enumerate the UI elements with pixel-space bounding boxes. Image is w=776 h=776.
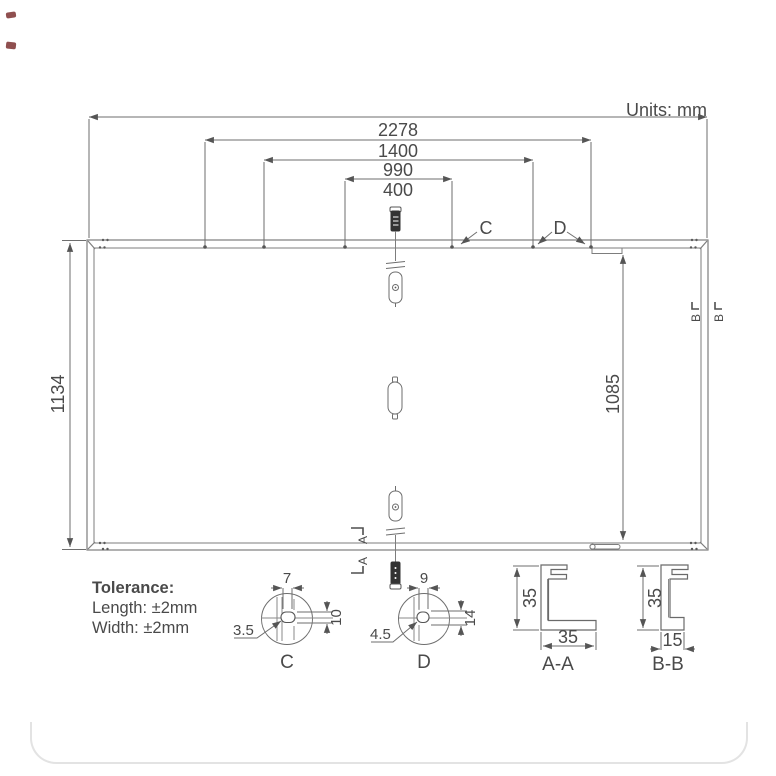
center-bottom-connector (386, 486, 405, 589)
detail-c: 7 10 3.5 C (233, 570, 345, 673)
detail-c-radius-label: 3.5 (233, 622, 254, 639)
section-marker-a: A (356, 557, 370, 565)
technical-drawing-canvas: Units: mm (0, 0, 776, 776)
section-bb-width-label: 15 (662, 630, 682, 650)
tolerance-note: Tolerance: Length: ±2mm Width: ±2mm (92, 579, 197, 637)
detail-d-radius-label: 4.5 (370, 626, 391, 643)
section-aa-height-label: 35 (520, 588, 540, 608)
dimension-label-1134: 1134 (48, 375, 68, 414)
dimension-label-1400: 1400 (378, 141, 418, 161)
tolerance-title: Tolerance: (92, 579, 174, 597)
section-b-cut-marks (692, 302, 722, 309)
detail-c-height-label: 10 (328, 609, 345, 626)
junction-box-body (388, 382, 402, 414)
frame-top-notch (592, 248, 622, 254)
corner-chamfer (700, 542, 707, 549)
center-top-connector (386, 207, 405, 307)
cable-break-mark (386, 267, 405, 269)
cable-break-mark (386, 533, 405, 535)
detail-d-title: D (417, 652, 431, 673)
tolerance-length: Length: ±2mm (92, 599, 197, 617)
dimension-label-990: 990 (383, 160, 413, 180)
mounting-slot-d (417, 612, 429, 623)
cable-break-mark (386, 528, 405, 530)
callout-d-label: D (554, 218, 567, 238)
section-bb-height-label: 35 (645, 588, 665, 608)
section-aa-width-label: 35 (558, 627, 578, 647)
section-aa-title: A-A (542, 654, 574, 675)
detail-d-width-label: 9 (420, 570, 428, 587)
detail-c-dim-7 (271, 588, 304, 609)
detail-c-width-label: 7 (283, 570, 291, 587)
corner-chamfer (88, 241, 95, 249)
cable-plug-body (389, 491, 402, 521)
section-aa: 35 35 A-A (513, 565, 596, 675)
callout-c-label: C (480, 218, 493, 238)
cable-break-mark (386, 262, 405, 264)
detail-d-height-label: 14 (462, 610, 479, 627)
frame-profile-aa (541, 565, 596, 630)
section-marker-b: B (712, 314, 726, 322)
center-junction-box (388, 377, 402, 419)
section-bb: 35 15 B-B (637, 565, 695, 675)
section-marker-a: A (356, 536, 370, 544)
detail-d-dim-9 (407, 588, 440, 609)
corner-chamfer (88, 542, 95, 549)
corner-chamfer (700, 241, 707, 249)
detail-d: 9 14 4.5 D (370, 570, 479, 673)
detail-c-title: C (280, 652, 294, 673)
dimension-label-2278: 2278 (378, 120, 418, 140)
page-card-bottom-edge (30, 722, 748, 764)
section-bb-title: B-B (652, 654, 684, 675)
frame-profile-bb (661, 565, 688, 630)
dimension-label-1085: 1085 (603, 374, 623, 414)
mounting-slot-c (281, 612, 295, 623)
section-marker-b: B (689, 314, 703, 322)
tolerance-width: Width: ±2mm (92, 619, 189, 637)
dimension-label-400: 400 (383, 180, 413, 200)
